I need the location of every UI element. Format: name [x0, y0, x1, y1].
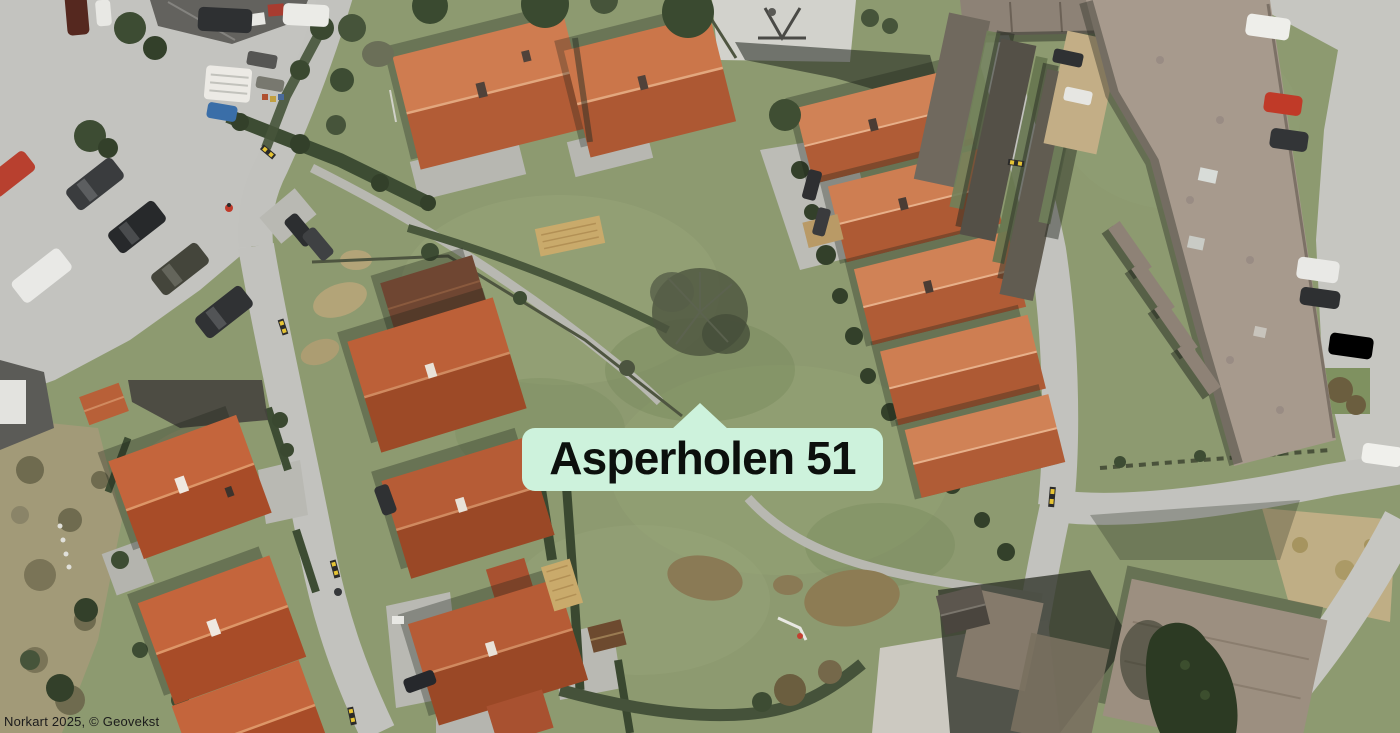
map-viewport[interactable]: Asperholen 51 Norkart 2025, © Geovekst	[0, 0, 1400, 733]
aerial-imagery	[0, 0, 1400, 733]
map-attribution: Norkart 2025, © Geovekst	[4, 714, 159, 729]
address-label: Asperholen 51	[549, 435, 856, 484]
address-callout: Asperholen 51	[522, 428, 883, 491]
